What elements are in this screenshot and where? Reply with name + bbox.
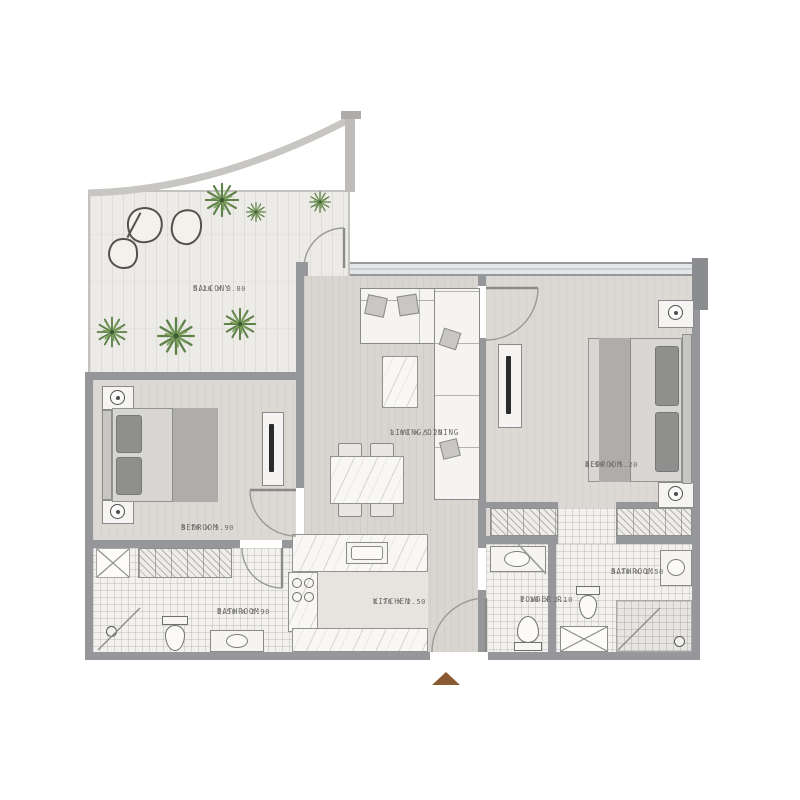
- bed-headboard: [102, 410, 112, 500]
- wardrobe: [138, 548, 232, 578]
- wall-entry-hall: [478, 590, 486, 652]
- lamp-icon: [668, 305, 683, 320]
- palm-plant-icon: [245, 201, 267, 223]
- wall-living-right-stub: [478, 276, 486, 286]
- stove-burner-icon: [304, 592, 314, 602]
- bed-blanket: [172, 408, 218, 502]
- palm-plant-icon: [222, 306, 258, 342]
- dining-chair: [370, 503, 394, 517]
- bed-pillow: [116, 415, 142, 453]
- dining-chair: [338, 503, 362, 517]
- floor-plan: BALCONY 5.20 X 3.80 LIVING/DINING 3.80 X…: [0, 0, 800, 800]
- wall-bedroom-bathroom-left: [93, 540, 240, 548]
- room-dimensions: 2.70 X 2.50: [373, 597, 426, 607]
- bed-pillow: [116, 457, 142, 495]
- wall-left: [85, 372, 93, 660]
- window-band-top: [350, 262, 692, 276]
- bathroom-corridor-floor: [558, 508, 616, 544]
- wall-top-stub: [296, 262, 308, 276]
- dining-chair: [370, 443, 394, 457]
- canopy-post: [345, 114, 355, 192]
- canopy-cap: [341, 111, 361, 119]
- toilet-tank: [162, 616, 188, 625]
- room-dimensions: 3.70 X 3.90: [181, 523, 234, 533]
- palm-plant-icon: [308, 190, 332, 214]
- tv-icon: [269, 424, 274, 472]
- lamp-icon: [668, 486, 683, 501]
- room-dimensions: 3.70 X 1.50: [611, 567, 664, 577]
- wall-powder-top: [486, 536, 558, 544]
- bed-headboard: [682, 334, 692, 484]
- kitchen-sink-basin: [351, 546, 383, 560]
- room-dimensions: 5.20 X 3.80: [193, 284, 246, 294]
- sofa-vertical: [434, 288, 480, 500]
- bed-pillow: [655, 412, 679, 472]
- wall-living-left-upper: [296, 268, 304, 488]
- palm-plant-icon: [95, 315, 129, 349]
- stove-burner-icon: [292, 592, 302, 602]
- entrance-marker-icon: [432, 672, 460, 685]
- stove-burner-icon: [292, 578, 302, 588]
- room-dimensions: 1.30 X 2.10: [520, 595, 573, 605]
- tv-icon: [506, 356, 511, 414]
- coffee-table: [382, 356, 418, 408]
- shaft-box: [560, 626, 608, 652]
- dining-table: [330, 456, 404, 504]
- lamp-icon: [110, 504, 125, 519]
- room-dimensions: 2.50 X 2.90: [217, 607, 270, 617]
- sink-basin-icon: [667, 559, 685, 576]
- wall-bottom-left: [85, 652, 430, 660]
- toilet-icon: [517, 616, 539, 643]
- sofa-pillow: [397, 294, 420, 317]
- wall-balcony-bedroom: [85, 372, 304, 380]
- shower-head-icon: [106, 626, 117, 637]
- wall-bottom-right: [488, 652, 700, 660]
- wall-column-top-right: [692, 258, 708, 310]
- room-dimensions: 3.80 X 5.20: [390, 428, 443, 438]
- palm-plant-icon: [203, 181, 241, 219]
- wall-right: [692, 276, 700, 660]
- toilet-tank: [514, 642, 542, 651]
- dining-chair: [338, 443, 362, 457]
- wardrobe: [490, 508, 558, 536]
- stove-burner-icon: [304, 578, 314, 588]
- bed-pillow: [655, 346, 679, 406]
- wardrobe: [616, 508, 692, 536]
- room-dimensions: 4.90 X 5.20: [585, 460, 638, 470]
- sofa-pillow: [364, 294, 388, 318]
- sink-basin-icon: [504, 551, 530, 567]
- shaft-box: [96, 548, 130, 578]
- lamp-icon: [110, 390, 125, 405]
- kitchen-counter-bottom: [292, 628, 428, 652]
- shower-head-icon: [674, 636, 685, 647]
- palm-plant-icon: [155, 315, 197, 357]
- toilet-tank: [576, 586, 600, 595]
- sink-basin-icon: [226, 634, 248, 648]
- wall-bathroom-right-top: [616, 536, 694, 544]
